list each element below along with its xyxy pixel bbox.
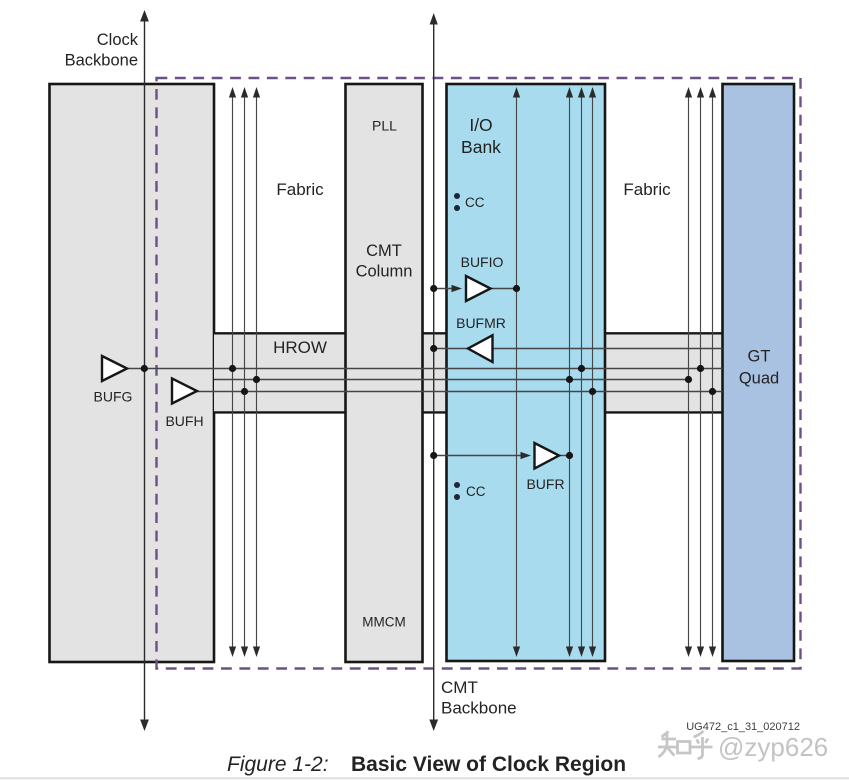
svg-text:I/O: I/O (469, 115, 492, 135)
svg-text:BUFIO: BUFIO (461, 254, 504, 270)
svg-text:Bank: Bank (461, 137, 501, 157)
svg-text:CMT: CMT (441, 678, 478, 697)
svg-text:BUFG: BUFG (94, 389, 133, 405)
svg-text:Fabric: Fabric (276, 180, 324, 199)
svg-text:Clock: Clock (97, 31, 139, 49)
svg-text:CC: CC (466, 484, 486, 499)
svg-text:CC: CC (465, 195, 485, 210)
svg-text:Basic View of Clock Region: Basic View of Clock Region (351, 753, 626, 776)
svg-text:Backbone: Backbone (65, 52, 138, 70)
svg-text:PLL: PLL (372, 118, 397, 134)
svg-text:HROW: HROW (273, 338, 327, 357)
svg-text:BUFR: BUFR (526, 476, 564, 492)
svg-text:BUFMR: BUFMR (456, 315, 506, 331)
svg-text:Backbone: Backbone (441, 699, 517, 718)
svg-text:@zyp626: @zyp626 (718, 732, 828, 762)
svg-text:CMT: CMT (366, 242, 402, 260)
svg-text:GT: GT (748, 348, 771, 366)
svg-text:Figure 1-2:: Figure 1-2: (227, 753, 329, 776)
svg-text:BUFH: BUFH (165, 413, 203, 429)
svg-text:Column: Column (356, 263, 413, 281)
svg-text:MMCM: MMCM (362, 615, 406, 630)
svg-text:Fabric: Fabric (623, 180, 671, 199)
svg-text:Quad: Quad (739, 370, 779, 388)
